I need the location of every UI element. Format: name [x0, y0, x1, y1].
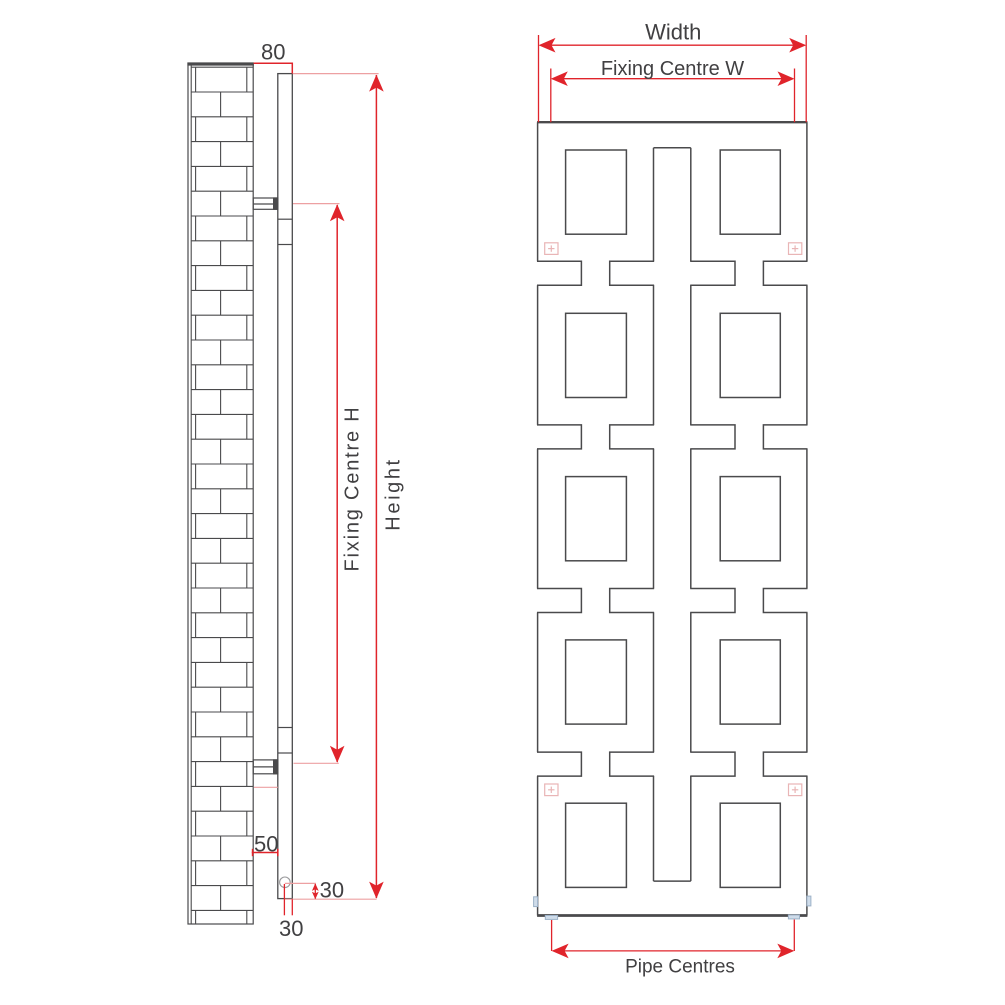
svg-text:Height: Height	[382, 457, 404, 530]
svg-text:30: 30	[279, 916, 303, 941]
svg-text:Pipe Centres: Pipe Centres	[625, 956, 735, 977]
svg-text:50: 50	[254, 831, 278, 856]
svg-text:80: 80	[261, 40, 285, 65]
svg-text:Width: Width	[645, 20, 701, 45]
svg-text:Fixing Centre H: Fixing Centre H	[342, 406, 364, 572]
svg-text:Fixing Centre W: Fixing Centre W	[601, 58, 744, 80]
svg-text:30: 30	[320, 877, 344, 902]
